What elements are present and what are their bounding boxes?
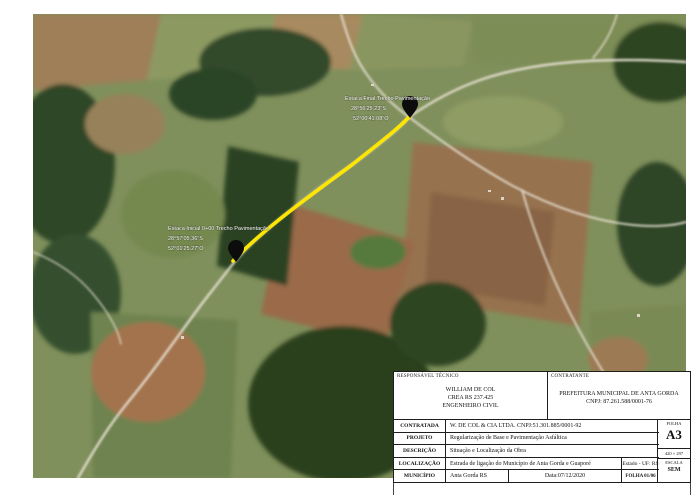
engineer-title: ENGENHEIRO CIVIL — [442, 403, 498, 411]
row-descricao-label: DESCRIÇÃO — [394, 445, 446, 457]
scale-cell: ESCALA SEM — [658, 459, 690, 482]
folha-label: FOLHA — [658, 421, 690, 426]
row-municipio-value: Anta Gorda RS — [446, 470, 508, 482]
start-pin-label-line1: Estaca Inicial 0+00 Trecho Pavimentação — [168, 226, 269, 232]
row-descricao: DESCRIÇÃO Situação e Localização da Obra — [394, 445, 659, 458]
title-block-rows: CONTRATADA W. DE COL & CIA LTDA. CNPJ:51… — [394, 420, 659, 482]
row-localizacao: LOCALIZAÇÃO Estrada de ligação do Municí… — [394, 458, 659, 471]
start-pin-label-line2: 28°57'05,36"S — [168, 236, 203, 242]
row-descricao-value: Situação e Localização da Obra — [446, 445, 659, 457]
end-pin-label-line2: 28°56'25,23"S — [351, 106, 386, 112]
end-pin-label-line3: 52°00'41,08"O — [353, 116, 389, 122]
title-block-header: RESPONSÁVEL TÉCNICO WILLIAM DE COL CREA … — [394, 372, 690, 420]
start-pin-label-line3: 52°01'25,27"O — [168, 246, 204, 252]
contratante-name: PREFEITURA MUNICIPAL DE ANTA GORDA — [559, 391, 678, 399]
escala-label: ESCALA — [658, 460, 690, 465]
row-projeto: PROJETO Regularização de Base e Paviment… — [394, 433, 659, 446]
end-pin-label-line1: Estaca Final Trecho Pavimentação — [345, 96, 430, 102]
sheet-info-column: FOLHA A3 420 × 297 ESCALA SEM — [657, 420, 690, 482]
sheet-size: 420 × 297 — [658, 449, 690, 459]
row-municipio-folha: FOLHA 01/06 — [621, 470, 659, 482]
engineer-crea: CREA RS 237.425 — [448, 395, 494, 403]
sheet-format-cell: FOLHA A3 — [658, 420, 690, 449]
row-localizacao-estado: Estado - UF: RS — [621, 458, 659, 470]
row-municipio-label: MUNICÍPIO — [394, 470, 446, 482]
row-contratada: CONTRATADA W. DE COL & CIA LTDA. CNPJ:51… — [394, 420, 659, 433]
row-projeto-value: Regularização de Base e Pavimentação Asf… — [446, 433, 659, 445]
escala-value: SEM — [658, 467, 690, 473]
frame-tick-left — [393, 483, 394, 495]
row-localizacao-label: LOCALIZAÇÃO — [394, 458, 446, 470]
row-projeto-label: PROJETO — [394, 433, 446, 445]
engineer-name: WILLIAM DE COL — [446, 387, 496, 395]
contratante-cell: CONTRATANTE PREFEITURA MUNICIPAL DE ANTA… — [548, 372, 690, 419]
title-block: RESPONSÁVEL TÉCNICO WILLIAM DE COL CREA … — [393, 371, 691, 483]
row-localizacao-value: Estrada de ligação do Município de Anta … — [446, 458, 621, 470]
responsavel-tecnico-content: WILLIAM DE COL CREA RS 237.425 ENGENHEIR… — [394, 372, 547, 419]
responsavel-tecnico-cell: RESPONSÁVEL TÉCNICO WILLIAM DE COL CREA … — [394, 372, 548, 419]
row-contratada-label: CONTRATADA — [394, 420, 446, 432]
sheet-format: A3 — [658, 427, 690, 443]
row-municipio: MUNICÍPIO Anta Gorda RS Data:07/12/2020 … — [394, 470, 659, 482]
contratante-content: PREFEITURA MUNICIPAL DE ANTA GORDA CNPJ:… — [548, 372, 690, 419]
drawing-sheet: Estaca Final Trecho Pavimentação 28°56'2… — [0, 0, 700, 495]
row-contratada-value: W. DE COL & CIA LTDA. CNPJ:51.301.885/00… — [446, 420, 659, 432]
contratante-cnpj: CNPJ: 87.261.588/0001-76 — [586, 399, 652, 407]
row-municipio-date: Data:07/12/2020 — [508, 470, 621, 482]
frame-tick-right — [690, 483, 691, 495]
